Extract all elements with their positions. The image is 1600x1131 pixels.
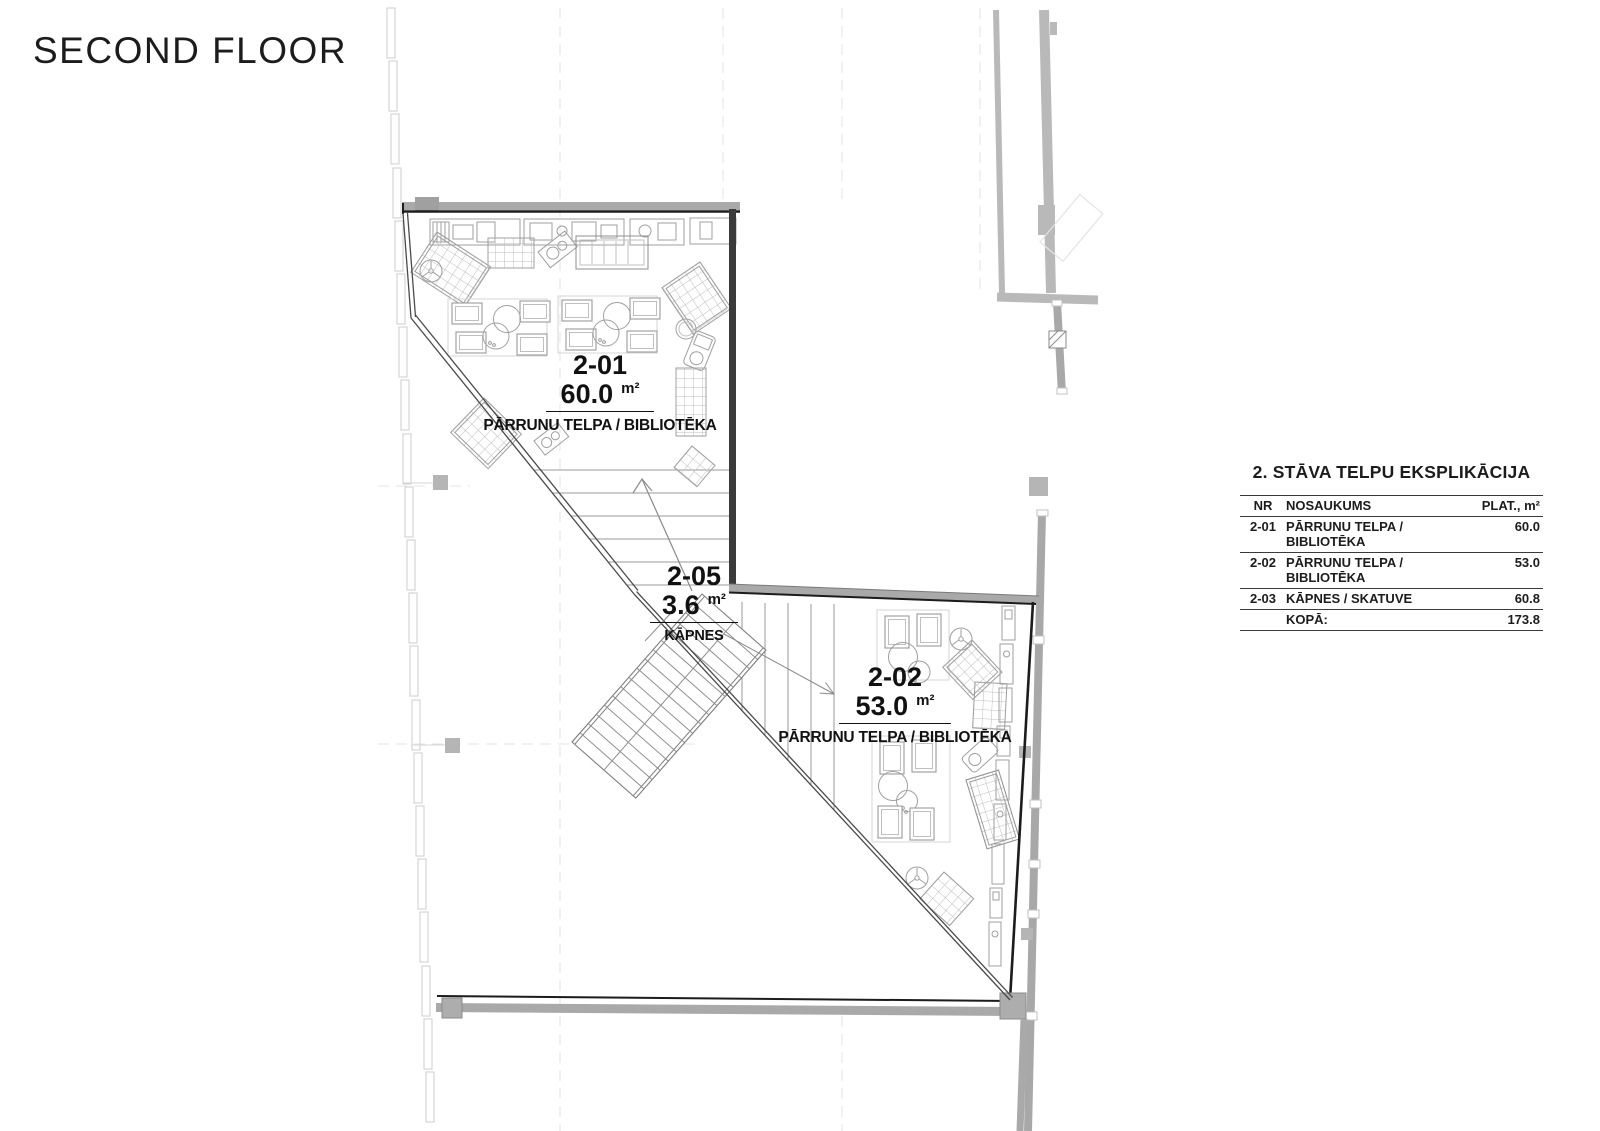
room-area: 60.0 bbox=[561, 379, 614, 409]
schedule-title: 2. STĀVA TELPU EKSPLIKĀCIJA bbox=[1240, 462, 1543, 483]
room-number: 2-01 bbox=[470, 352, 730, 380]
room-area-unit: m² bbox=[708, 591, 726, 608]
cell-nr: 2-03 bbox=[1240, 591, 1286, 606]
column-markers bbox=[433, 475, 460, 753]
cell-area: 60.0 bbox=[1474, 519, 1543, 534]
curtain-wall-left bbox=[387, 8, 445, 1122]
furniture-room-2-02 bbox=[872, 606, 1020, 966]
page-title: SECOND FLOOR bbox=[33, 30, 347, 72]
room-area-row: 3.6m² bbox=[604, 591, 784, 619]
room-label-2-05: 2-05 3.6m² KĀPNES bbox=[604, 563, 784, 644]
col-header-name: NOSAUKUMS bbox=[1286, 498, 1474, 513]
cell-name: PĀRRUNU TELPA / BIBLIOTĒKA bbox=[1286, 555, 1474, 585]
table-group bbox=[448, 299, 550, 356]
room-label-2-01: 2-01 60.0m² PĀRRUNU TELPA / BIBLIOTĒKA bbox=[470, 352, 730, 435]
room-schedule-table: 2. STĀVA TELPU EKSPLIKĀCIJA NR NOSAUKUMS… bbox=[1240, 462, 1543, 631]
room-name: PĀRRUNU TELPA / BIBLIOTĒKA bbox=[470, 417, 730, 435]
room-number: 2-05 bbox=[604, 563, 784, 591]
table-group bbox=[558, 296, 660, 353]
room-area-row: 53.0m² bbox=[765, 692, 1025, 720]
schedule-header-row: NR NOSAUKUMS PLAT., m² bbox=[1240, 495, 1543, 517]
cell-name: KOPĀ: bbox=[1286, 612, 1474, 627]
col-header-nr: NR bbox=[1240, 498, 1286, 513]
room-area-row: 60.0m² bbox=[470, 380, 730, 408]
cell-name: PĀRRUNU TELPA / BIBLIOTĒKA bbox=[1286, 519, 1474, 549]
room-number: 2-02 bbox=[765, 664, 1025, 692]
room-area-unit: m² bbox=[916, 692, 934, 709]
label-underline bbox=[839, 723, 951, 724]
schedule-row: 2-01 PĀRRUNU TELPA / BIBLIOTĒKA 60.0 bbox=[1240, 517, 1543, 553]
label-underline bbox=[546, 411, 654, 412]
hatched-column bbox=[1049, 331, 1066, 348]
schedule-row: 2-03 KĀPNES / SKATUVE 60.8 bbox=[1240, 589, 1543, 610]
room-area: 53.0 bbox=[856, 691, 909, 721]
cell-area: 60.8 bbox=[1474, 591, 1543, 606]
label-underline bbox=[650, 622, 738, 623]
room-name: PĀRRUNU TELPA / BIBLIOTĒKA bbox=[765, 729, 1025, 747]
room-label-2-02: 2-02 53.0m² PĀRRUNU TELPA / BIBLIOTĒKA bbox=[765, 664, 1025, 747]
table-group bbox=[872, 736, 950, 842]
room-area: 3.6 bbox=[662, 590, 700, 620]
neighbor-structure-top-right bbox=[996, 10, 1103, 300]
cell-name: KĀPNES / SKATUVE bbox=[1286, 591, 1474, 606]
room-name: KĀPNES bbox=[604, 628, 784, 644]
room-area-unit: m² bbox=[621, 380, 639, 397]
col-header-area: PLAT., m² bbox=[1474, 498, 1543, 513]
cell-area: 53.0 bbox=[1474, 555, 1543, 570]
cell-nr: 2-02 bbox=[1240, 555, 1286, 570]
cell-area: 173.8 bbox=[1474, 612, 1543, 627]
schedule-row: 2-02 PĀRRUNU TELPA / BIBLIOTĒKA 53.0 bbox=[1240, 553, 1543, 589]
cell-nr: 2-01 bbox=[1240, 519, 1286, 534]
schedule-total-row: KOPĀ: 173.8 bbox=[1240, 610, 1543, 631]
